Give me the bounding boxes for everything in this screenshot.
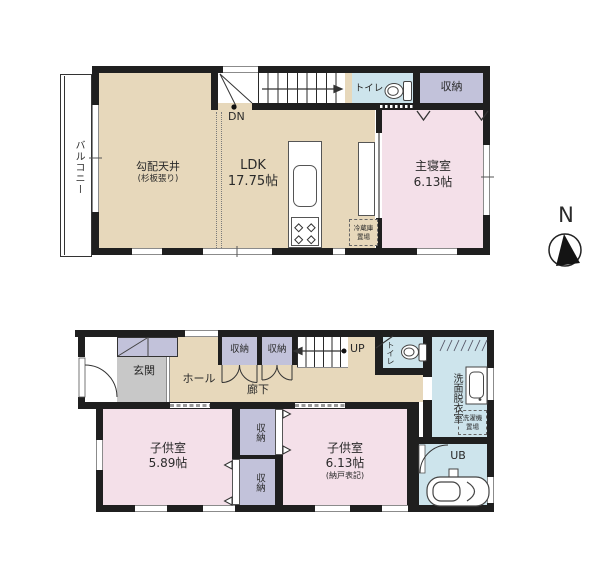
f2-toilet-folding-door — [380, 105, 413, 108]
hall-label: ホール — [176, 373, 222, 386]
f2-window-north — [223, 66, 258, 73]
f1-midcloset-wall-right — [275, 455, 283, 512]
f1-window-east-bath — [487, 477, 494, 503]
f2-window-west — [92, 105, 99, 212]
balcony-label: バルコニー — [68, 105, 84, 230]
f1-wall-top — [75, 330, 494, 337]
f2-stairs-left-wall — [211, 66, 218, 110]
ldk-label: LDK — [223, 158, 283, 173]
child2-sliding-door-bg — [295, 403, 345, 408]
child-room2-label: 子供室 — [314, 441, 376, 455]
f1-window-west-child1 — [96, 440, 103, 470]
laundry-space: 洗濯機 置場 — [458, 410, 487, 435]
entrance-door-gap — [78, 357, 85, 397]
f1-midcloset-divider — [232, 455, 283, 459]
fridge-label-line1: 冷蔵庫 — [354, 224, 374, 232]
toilet1f-label: トイレ — [384, 339, 395, 367]
storage-mid-bottom-label: 収納 — [250, 462, 265, 502]
stairs1f-steps — [297, 337, 348, 368]
f1-corridor-south-wall — [103, 402, 413, 409]
f2-wall-top — [92, 66, 490, 73]
f1-toilet-bottom-wall — [375, 368, 430, 375]
storage-mid-top-label: 収納 — [250, 412, 265, 452]
stairs1f-bottom-line — [297, 367, 348, 368]
f1-midcloset-wall-left — [232, 402, 240, 459]
f1-window-south-1 — [135, 505, 167, 512]
f1-window-south-4 — [382, 505, 408, 512]
f2-toilet-storage-wall — [413, 66, 420, 106]
f2-window-south-2 — [203, 248, 272, 255]
f1-window-south-2 — [203, 505, 235, 512]
bath-label: UB — [443, 450, 473, 463]
storage-mid-bottom-door — [232, 459, 240, 505]
master-bedroom-size: 6.13帖 — [402, 175, 464, 189]
f1-entr-west-wall-upper — [78, 337, 85, 357]
storage-mid-top-door — [275, 409, 283, 455]
kitchen-wall-counter — [358, 142, 375, 216]
entrance-step-line — [166, 357, 170, 402]
f2-window-east-bedroom — [483, 145, 490, 215]
toilet2f-label: トイレ — [353, 83, 385, 94]
f1-closetB-wall-r — [292, 337, 297, 365]
dn-label: DN — [228, 111, 260, 124]
up-label: UP — [350, 343, 376, 356]
f2-window-south-1 — [132, 248, 162, 255]
fridge-space: 冷蔵庫 置場 — [349, 219, 378, 246]
porch-floor — [85, 337, 117, 402]
storage1f-b-label: 収納 — [262, 344, 292, 355]
f1-window-south-3 — [315, 505, 350, 512]
stairs2f-steps — [258, 73, 345, 103]
entrance-label: 玄関 — [122, 365, 166, 378]
laundry-label-line1: 洗濯機 — [463, 414, 483, 422]
child-room2-note: (納戸表記) — [305, 471, 385, 480]
f2-window-south-bedroom — [417, 248, 457, 255]
f1-window-east-washroom — [487, 368, 494, 400]
kitchen-stove — [291, 217, 319, 246]
floor-plan-page: バルコニー — [0, 0, 600, 586]
master-bedroom-label: 主寝室 — [402, 159, 464, 173]
child-room1-label: 子供室 — [137, 441, 199, 455]
f1-window-north — [185, 330, 218, 337]
child-room1-size: 5.89帖 — [137, 456, 199, 470]
balcony-railing-line — [64, 76, 65, 255]
corridor-label: 廊下 — [238, 384, 278, 397]
storage1f-a-label: 収納 — [222, 344, 257, 355]
sloped-ceiling-label: 勾配天井 — [113, 161, 203, 174]
stairs2f-landing — [218, 73, 258, 103]
storage2f-label: 収納 — [424, 81, 479, 94]
child1-sliding-door-bg — [170, 403, 210, 408]
laundry-label-line2: 置場 — [466, 423, 479, 431]
f2-bedroom-left-wall-upper — [376, 110, 382, 133]
f1-washroom-left-wall-upper — [423, 337, 432, 377]
child-room2-size: 6.13帖 — [314, 456, 376, 470]
f2-stairs-bottom-wall — [252, 103, 490, 110]
f1-ub-left-wall — [407, 402, 419, 512]
washroom-label: 洗面脱衣室 — [447, 355, 462, 440]
f2-window-south-3 — [333, 248, 345, 255]
sloped-ceiling-note: (杉板張り) — [113, 174, 203, 184]
fridge-label-line2: 置場 — [357, 233, 370, 241]
kitchen-sink — [293, 165, 317, 207]
north-compass-icon — [549, 234, 581, 266]
compass-n-label: N — [546, 203, 586, 228]
shoe-cabinet — [117, 337, 178, 357]
ldk-size-label: 17.75帖 — [213, 174, 293, 189]
f2-bedroom-left-wall-thin — [378, 133, 380, 218]
